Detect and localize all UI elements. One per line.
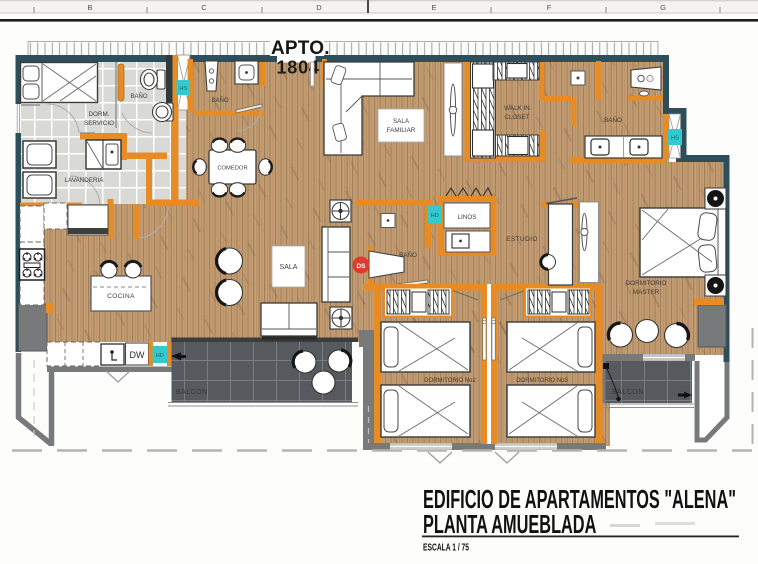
svg-text:DORMITORIO No3: DORMITORIO No3 bbox=[516, 378, 568, 384]
svg-text:G: G bbox=[660, 3, 666, 12]
svg-text:COMEDOR: COMEDOR bbox=[217, 166, 247, 172]
svg-text:BAÑO: BAÑO bbox=[130, 93, 147, 100]
svg-text:HS: HS bbox=[179, 86, 187, 92]
svg-text:DORMITORIO No2: DORMITORIO No2 bbox=[424, 378, 476, 384]
svg-text:BALCON: BALCON bbox=[176, 389, 208, 396]
svg-text:CLOSET: CLOSET bbox=[504, 114, 529, 121]
svg-text:LINOS: LINOS bbox=[458, 214, 477, 221]
svg-text:ESCALA 1 / 75: ESCALA 1 / 75 bbox=[423, 541, 469, 553]
svg-text:BAÑO: BAÑO bbox=[604, 115, 622, 124]
svg-text:COCINA: COCINA bbox=[107, 293, 135, 300]
svg-text:PLANTA AMUEBLADA: PLANTA AMUEBLADA bbox=[423, 510, 596, 539]
svg-text:MASTER: MASTER bbox=[633, 289, 660, 296]
svg-text:DORMITORIO: DORMITORIO bbox=[626, 280, 667, 287]
svg-text:LAVANDERIA: LAVANDERIA bbox=[65, 177, 105, 184]
svg-text:HD: HD bbox=[156, 353, 164, 359]
svg-text:FAMILIAR: FAMILIAR bbox=[387, 127, 416, 134]
svg-text:F: F bbox=[547, 3, 552, 12]
svg-text:SALA: SALA bbox=[393, 118, 410, 125]
svg-text:APTO.: APTO. bbox=[271, 38, 330, 59]
svg-text:C: C bbox=[201, 3, 207, 12]
svg-text:HD: HD bbox=[431, 213, 439, 219]
svg-text:DORM.: DORM. bbox=[89, 111, 110, 118]
svg-text:BAÑO: BAÑO bbox=[399, 250, 417, 259]
svg-text:B: B bbox=[87, 3, 92, 12]
svg-text:SERVICIO: SERVICIO bbox=[84, 120, 114, 127]
svg-text:DW: DW bbox=[130, 350, 145, 360]
svg-text:BAÑO: BAÑO bbox=[211, 97, 228, 104]
svg-text:D: D bbox=[316, 3, 322, 12]
svg-text:SALA: SALA bbox=[280, 264, 298, 271]
svg-text:DS: DS bbox=[356, 263, 366, 270]
svg-text:WALK IN: WALK IN bbox=[504, 105, 530, 112]
svg-text:ESTUDIO: ESTUDIO bbox=[506, 236, 538, 243]
svg-text:HS: HS bbox=[671, 136, 679, 142]
svg-text:E: E bbox=[431, 3, 436, 12]
